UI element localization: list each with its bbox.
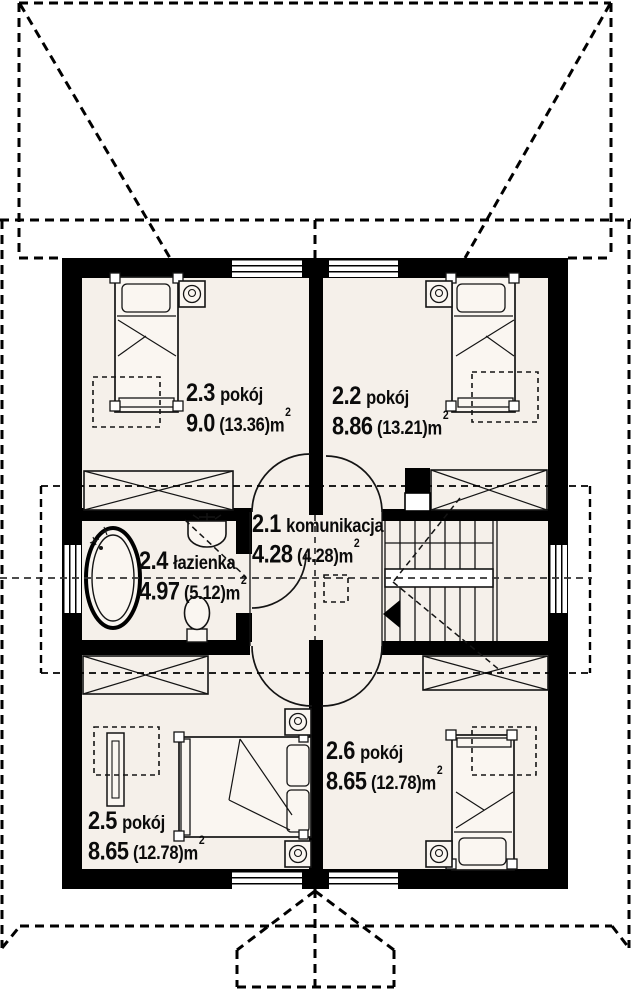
wall-bath-east-upper xyxy=(236,508,252,554)
room-number: 2.4 xyxy=(139,547,168,575)
room-name: pokój xyxy=(220,385,263,406)
wall-center-lower xyxy=(309,640,323,869)
window-bottom-right xyxy=(329,871,398,889)
room-title: 2.6pokój xyxy=(326,739,443,763)
floor-plan-canvas: 2.3pokój 9.0(13.36)m2 2.2pokój 8.86(13.2… xyxy=(0,0,631,990)
room-name: łazienka xyxy=(173,553,235,574)
room-area: 4.97(5.12)m2 xyxy=(139,577,247,607)
room-label-2-1: 2.1komunikacja 4.28(4.28)m2 xyxy=(252,512,383,570)
roof-dormer-bottom xyxy=(237,889,394,987)
wall-exterior-bottom xyxy=(62,869,568,889)
room-area: 9.0(13.36)m2 xyxy=(186,409,291,439)
wall-exterior-top xyxy=(62,258,568,278)
roof-outline-top xyxy=(19,3,611,258)
room-number: 2.6 xyxy=(326,737,355,765)
room-name: pokój xyxy=(122,813,165,834)
room-number: 2.2 xyxy=(332,382,361,410)
window-top-right xyxy=(329,259,398,278)
wall-bath-east-lower xyxy=(236,613,252,642)
room-area: 4.28(4.28)m2 xyxy=(252,540,383,570)
room-number: 2.5 xyxy=(88,807,117,835)
wall-center-upper xyxy=(309,278,323,515)
room-label-2-4: 2.4łazienka 4.97(5.12)m2 xyxy=(139,549,247,607)
wall-stairs-north xyxy=(382,509,548,521)
room-title: 2.1komunikacja xyxy=(252,512,383,536)
room-number: 2.3 xyxy=(186,379,215,407)
window-right-stairs xyxy=(549,545,568,613)
room-title: 2.4łazienka xyxy=(139,549,247,573)
wall-room23-south xyxy=(82,508,250,521)
room-title: 2.5pokój xyxy=(88,809,205,833)
room-label-2-2: 2.2pokój 8.86(13.21)m2 xyxy=(332,384,449,442)
room-area: 8.65(12.78)m2 xyxy=(326,767,443,797)
room-title: 2.2pokój xyxy=(332,384,449,408)
room-area: 8.86(13.21)m2 xyxy=(332,412,449,442)
window-bottom-left xyxy=(232,871,302,889)
room-area: 8.65(12.78)m2 xyxy=(88,837,205,867)
window-top-left xyxy=(232,259,302,278)
room-name: pokój xyxy=(360,743,403,764)
wall-bath-south xyxy=(82,640,250,655)
room-name: komunikacja xyxy=(286,516,383,537)
room-title: 2.3pokój xyxy=(186,381,291,405)
wall-stairs-south xyxy=(382,641,548,655)
window-left-bath xyxy=(63,545,82,613)
room-number: 2.1 xyxy=(252,510,281,538)
room-label-2-3: 2.3pokój 9.0(13.36)m2 xyxy=(186,381,291,439)
room-name: pokój xyxy=(366,388,409,409)
room-label-2-6: 2.6pokój 8.65(12.78)m2 xyxy=(326,739,443,797)
room-label-2-5: 2.5pokój 8.65(12.78)m2 xyxy=(88,809,205,867)
